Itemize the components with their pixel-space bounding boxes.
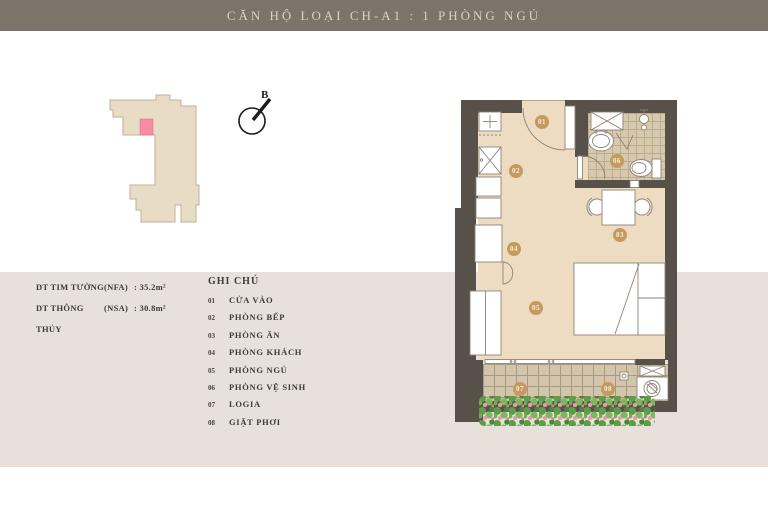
page-title: CĂN HỘ LOẠI CH-A1 : 1 PHÒNG NGỦ (227, 8, 541, 24)
room-marker-04: 04 (507, 242, 521, 256)
sliding-door (485, 360, 635, 364)
kitchen-stove (479, 112, 501, 131)
legend-item-label: LOGIA (229, 399, 261, 409)
area-value: : 30.8m² (134, 298, 166, 340)
entry-door (523, 106, 575, 150)
legend-heading: GHI CHÚ (208, 276, 388, 287)
area-label: DT THÔNG THỦY (36, 298, 104, 340)
legend-item-number: 02 (208, 314, 229, 322)
legend-item-number: 04 (208, 349, 229, 357)
wardrobe (470, 291, 501, 355)
legend-item-label: PHÒNG BẾP (229, 312, 285, 322)
dining-table (602, 190, 635, 225)
room-marker-02: 02 (509, 164, 523, 178)
toilet (630, 159, 661, 178)
legend-item-number: 01 (208, 297, 229, 305)
shower-head (640, 110, 649, 130)
legend-item: 06 PHÒNG VỆ SINH (208, 382, 388, 399)
kitchen-sink (479, 147, 501, 174)
bathroom-door (578, 156, 640, 188)
compass-icon: B (233, 86, 281, 138)
area-value: : 35.2m² (134, 277, 166, 298)
room-marker-06: 06 (610, 154, 624, 168)
legend-item-number: 07 (208, 401, 229, 409)
legend-item: 03 PHÒNG ĂN (208, 330, 388, 347)
legend-item-label: PHÒNG KHÁCH (229, 347, 302, 357)
area-code: (NSA) (104, 298, 134, 340)
area-row: DT THÔNG THỦY (NSA) : 30.8m² (36, 298, 221, 340)
vent-box (591, 112, 623, 130)
legend-item: 08 GIẶT PHƠI (208, 417, 388, 434)
area-summary: DT TIM TƯỜNG (NFA) : 35.2m² DT THÔNG THỦ… (36, 277, 221, 340)
legend-item-number: 06 (208, 384, 229, 392)
compass-label: B (261, 89, 269, 101)
legend-item: 07 LOGIA (208, 399, 388, 416)
bathroom-sink (589, 131, 614, 151)
legend-item: 02 PHÒNG BẾP (208, 312, 388, 329)
shower-screen (616, 133, 633, 149)
legend: GHI CHÚ 01 CỬA VÀO 02 PHÒNG BẾP 03 PHÒNG… (208, 276, 388, 434)
legend-item: 05 PHÒNG NGỦ (208, 365, 388, 382)
legend-item-label: PHÒNG NGỦ (229, 365, 287, 375)
legend-item-label: PHÒNG ĂN (229, 330, 280, 340)
room-marker-05: 05 (529, 301, 543, 315)
screen: CĂN HỘ LOẠI CH-A1 : 1 PHÒNG NGỦ B DT TIM… (0, 0, 768, 512)
planter (479, 394, 655, 426)
floor-plan: 01 02 03 04 05 06 07 08 (455, 98, 677, 428)
fridge (475, 225, 502, 262)
room-marker-01: 01 (535, 115, 549, 129)
legend-item-number: 05 (208, 367, 229, 375)
key-plan (98, 92, 210, 228)
header-bar: CĂN HỘ LOẠI CH-A1 : 1 PHÒNG NGỦ (0, 0, 768, 31)
area-row: DT TIM TƯỜNG (NFA) : 35.2m² (36, 277, 221, 298)
legend-item-label: GIẶT PHƠI (229, 417, 281, 427)
room-marker-03: 03 (613, 228, 627, 242)
legend-item-number: 08 (208, 419, 229, 427)
legend-item: 01 CỬA VÀO (208, 295, 388, 312)
bed (574, 263, 665, 335)
ac-unit (640, 366, 665, 376)
area-code: (NFA) (104, 277, 134, 298)
legend-item-number: 03 (208, 332, 229, 340)
legend-item-label: CỬA VÀO (229, 295, 273, 305)
cabinet-door (503, 262, 513, 284)
key-plan-outline (110, 95, 199, 222)
area-label: DT TIM TƯỜNG (36, 277, 104, 298)
kitchen-counter (476, 177, 501, 218)
floor-drain (620, 372, 628, 380)
highlighted-unit (140, 119, 153, 135)
dining-chair-right (634, 198, 652, 216)
legend-item: 04 PHÒNG KHÁCH (208, 347, 388, 364)
legend-item-label: PHÒNG VỆ SINH (229, 382, 306, 392)
